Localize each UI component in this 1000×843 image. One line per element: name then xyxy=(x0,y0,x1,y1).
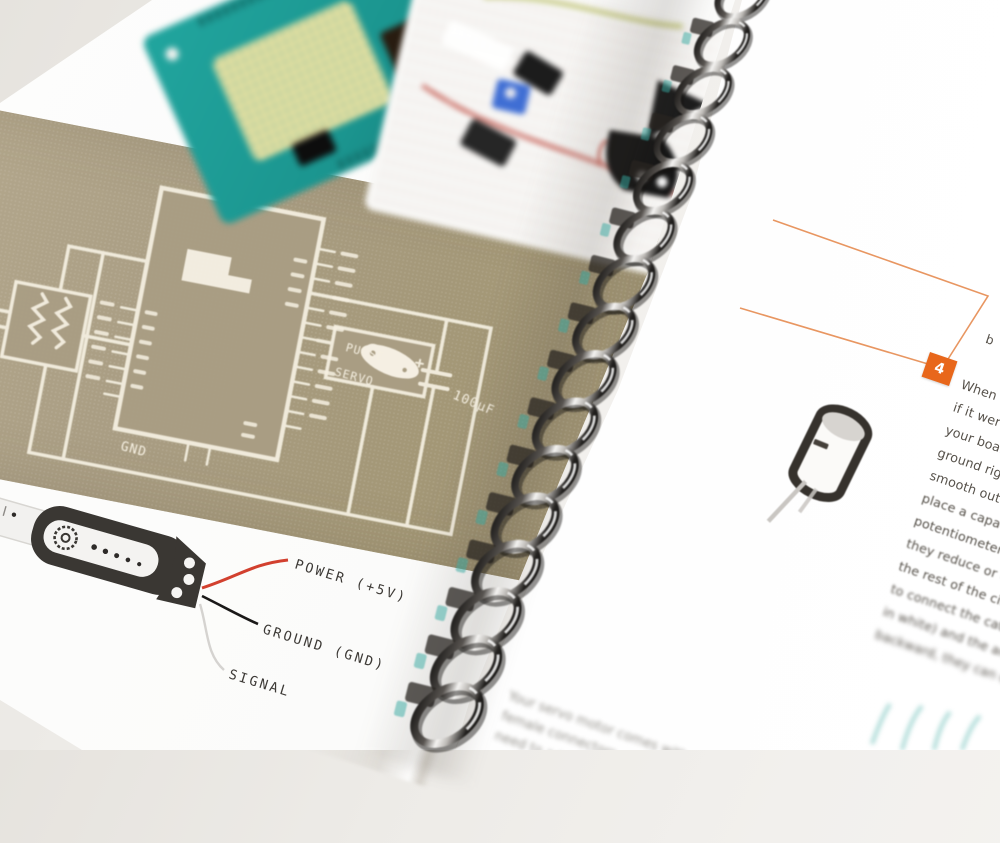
capacitor-illustration xyxy=(735,368,925,578)
signal-label: SIGNAL xyxy=(227,667,293,701)
gnd-label: GND xyxy=(119,439,148,460)
teal-illustration-corner xyxy=(872,704,980,750)
servo-drawing xyxy=(0,478,213,610)
servo-hole xyxy=(657,177,668,188)
ground-label: GROUND (GND) xyxy=(261,622,388,675)
pot-wire xyxy=(83,336,131,345)
book-photo: GND PULSE SERVO 100µF xyxy=(0,0,1000,750)
servo-body-shape xyxy=(606,130,677,198)
power-label: POWER (+5V) xyxy=(293,557,409,606)
servo-wire xyxy=(599,140,606,164)
capacitor-drawing xyxy=(768,402,873,544)
mounting-hole xyxy=(164,45,181,62)
ground-wire xyxy=(202,596,258,624)
servo-flag-shape xyxy=(646,80,708,140)
orange-frame-line xyxy=(773,220,988,367)
arduino-outline xyxy=(115,188,324,460)
power-wire xyxy=(202,560,288,588)
servo-hole xyxy=(637,171,648,182)
servo-wire xyxy=(317,340,332,343)
potentiometer-box xyxy=(2,282,91,371)
badge-leader-line xyxy=(740,308,928,364)
signal-wire xyxy=(200,604,224,670)
servo-pinout-diagram: POWER (+5V) GROUND (GND) SIGNAL xyxy=(0,478,434,738)
proto-shield-grid xyxy=(211,0,395,163)
